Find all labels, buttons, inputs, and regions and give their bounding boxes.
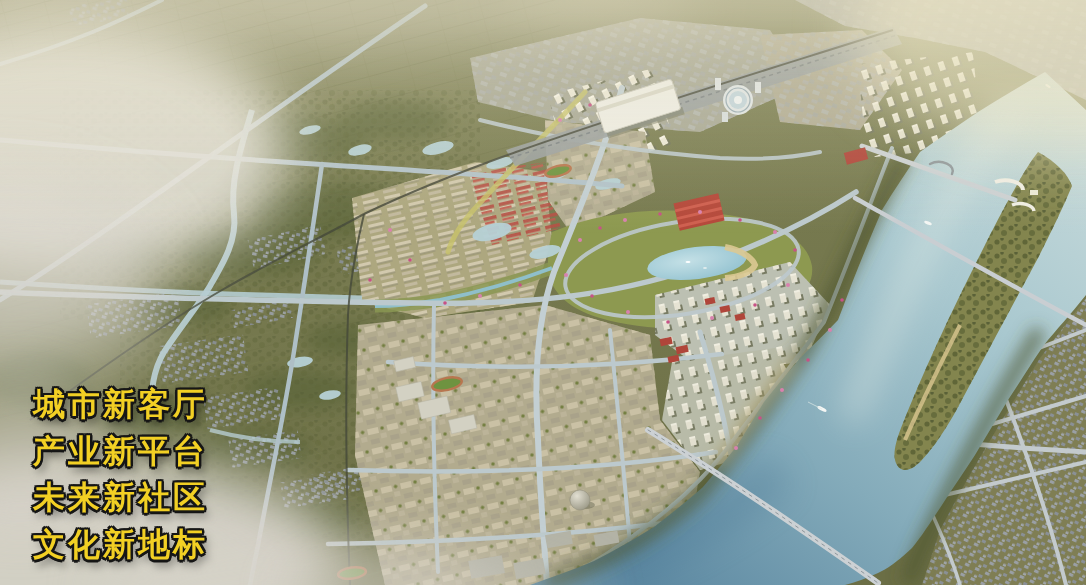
slogan-line-1: 城市新客厅 — [33, 381, 208, 428]
slogan: 城市新客厅 产业新平台 未来新社区 文化新地标 — [33, 381, 208, 567]
slogan-line-3: 未来新社区 — [33, 474, 208, 521]
city-aerial-rendering: 城市新客厅 产业新平台 未来新社区 文化新地标 — [0, 0, 1086, 585]
slogan-line-2: 产业新平台 — [33, 428, 208, 475]
slogan-line-4: 文化新地标 — [33, 521, 208, 568]
